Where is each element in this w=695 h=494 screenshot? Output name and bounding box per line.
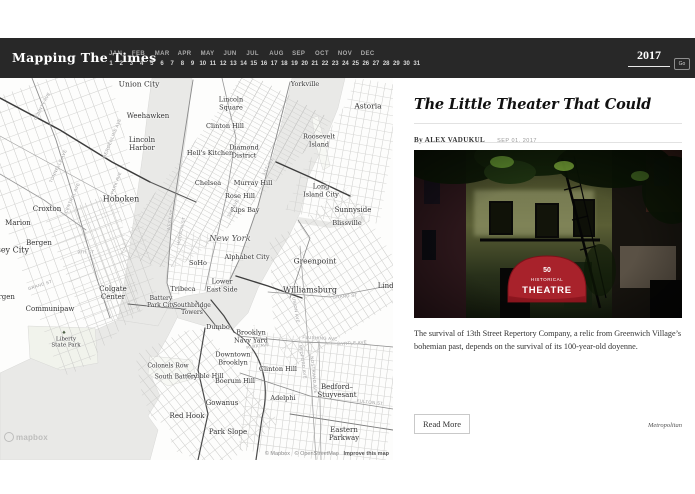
month-jun[interactable]: JUN: [223, 51, 246, 57]
day-4[interactable]: 4: [137, 61, 147, 67]
month-oct[interactable]: OCT: [315, 51, 338, 57]
month-selector: JANFEBMARAPRMAYJUNJULAUGSEPOCTNOVDEC: [109, 51, 384, 57]
day-6[interactable]: 6: [157, 61, 167, 67]
day-11[interactable]: 11: [208, 61, 218, 67]
improve-map-link[interactable]: Improve this map: [343, 451, 389, 457]
day-14[interactable]: 14: [238, 61, 248, 67]
day-31[interactable]: 31: [412, 61, 422, 67]
byline-row: By ALEX VADUKULSEP 01, 2017: [414, 129, 682, 147]
month-may[interactable]: MAY: [201, 51, 224, 57]
mapbox-attribution-link[interactable]: © Mapbox: [265, 451, 290, 457]
day-7[interactable]: 7: [167, 61, 177, 67]
day-21[interactable]: 21: [310, 61, 320, 67]
day-1[interactable]: 1: [106, 61, 116, 67]
day-22[interactable]: 22: [320, 61, 330, 67]
day-30[interactable]: 30: [401, 61, 411, 67]
article-date: SEP 01, 2017: [497, 138, 537, 144]
theater-photo-illustration: 50 HISTORICAL THEATRE: [414, 150, 682, 318]
article-body: The survival of 13th Street Repertory Co…: [414, 328, 686, 353]
day-28[interactable]: 28: [381, 61, 391, 67]
day-29[interactable]: 29: [391, 61, 401, 67]
month-apr[interactable]: APR: [178, 51, 201, 57]
month-mar[interactable]: MAR: [155, 51, 178, 57]
day-25[interactable]: 25: [351, 61, 361, 67]
month-jan[interactable]: JAN: [109, 51, 132, 57]
osm-attribution-link[interactable]: © OpenStreetMap: [295, 451, 339, 457]
divider: [414, 142, 682, 143]
day-17[interactable]: 17: [269, 61, 279, 67]
day-20[interactable]: 20: [300, 61, 310, 67]
article-title: The Little Theater That Could: [414, 96, 684, 113]
day-15[interactable]: 15: [249, 61, 259, 67]
map-attribution: © Mapbox © OpenStreetMap Improve this ma…: [262, 451, 389, 457]
day-12[interactable]: 12: [218, 61, 228, 67]
day-27[interactable]: 27: [371, 61, 381, 67]
day-13[interactable]: 13: [228, 61, 238, 67]
month-jul[interactable]: JUL: [246, 51, 269, 57]
day-8[interactable]: 8: [177, 61, 187, 67]
day-10[interactable]: 10: [198, 61, 208, 67]
divider: [414, 123, 682, 124]
day-26[interactable]: 26: [361, 61, 371, 67]
day-23[interactable]: 23: [330, 61, 340, 67]
read-more-button[interactable]: Read More: [414, 414, 470, 434]
mapbox-logo-text: mapbox: [16, 433, 48, 442]
day-selector: 1234567891011121314151617181920212223242…: [106, 61, 422, 67]
day-24[interactable]: 24: [340, 61, 350, 67]
mapbox-logo[interactable]: mapbox: [4, 432, 48, 442]
day-9[interactable]: 9: [188, 61, 198, 67]
section-label: Metropolitan: [648, 422, 682, 429]
article-photo: 50 HISTORICAL THEATRE: [414, 150, 682, 318]
year-input[interactable]: [628, 46, 670, 67]
month-aug[interactable]: AUG: [269, 51, 292, 57]
day-5[interactable]: 5: [147, 61, 157, 67]
month-nov[interactable]: NOV: [338, 51, 361, 57]
go-button[interactable]: Go: [674, 58, 690, 70]
day-18[interactable]: 18: [279, 61, 289, 67]
month-feb[interactable]: FEB: [132, 51, 155, 57]
day-3[interactable]: 3: [126, 61, 136, 67]
day-16[interactable]: 16: [259, 61, 269, 67]
day-2[interactable]: 2: [116, 61, 126, 67]
map-viewport[interactable]: Union CityWeehawkenLincoln HarborHoboken…: [0, 78, 393, 460]
header-bar: Mapping The Times JANFEBMARAPRMAYJUNJULA…: [0, 38, 695, 78]
month-dec[interactable]: DEC: [361, 51, 384, 57]
day-19[interactable]: 19: [289, 61, 299, 67]
month-sep[interactable]: SEP: [292, 51, 315, 57]
mapbox-logo-icon: [4, 432, 14, 442]
map-canvas: [0, 78, 393, 460]
article-panel: The Little Theater That Could By ALEX VA…: [393, 78, 695, 460]
app-window: Mapping The Times JANFEBMARAPRMAYJUNJULA…: [0, 0, 695, 494]
